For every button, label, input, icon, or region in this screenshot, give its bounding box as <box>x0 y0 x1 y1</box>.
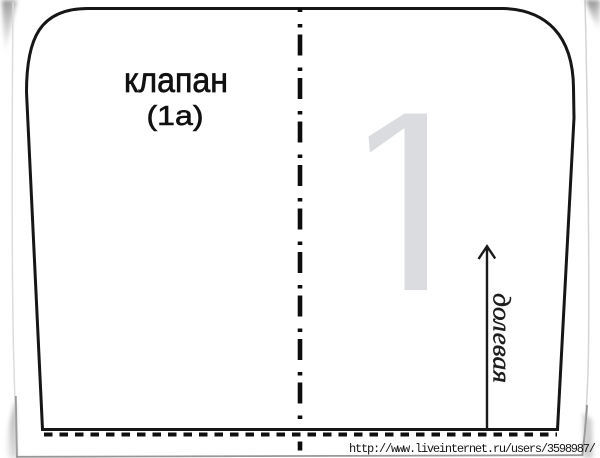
svg-text:http://www.liveinternet.ru/use: http://www.liveinternet.ru/users/3598987… <box>349 442 596 456</box>
svg-text:клапан: клапан <box>124 61 228 100</box>
svg-text:долевая: долевая <box>488 293 515 383</box>
svg-text:(1а): (1а) <box>147 100 204 131</box>
